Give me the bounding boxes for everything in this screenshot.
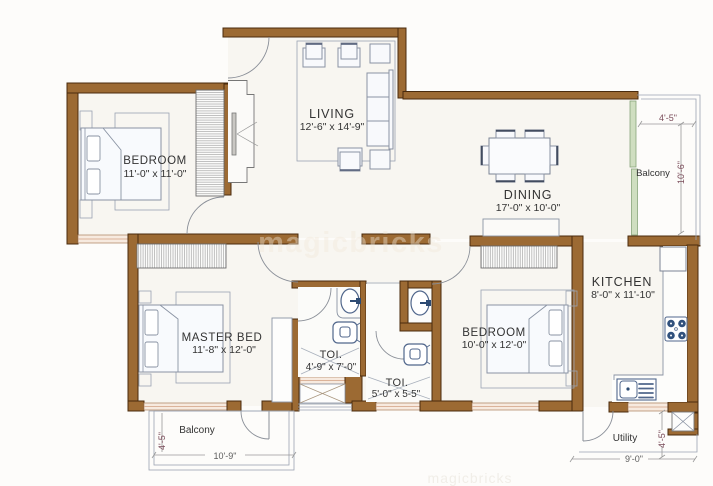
svg-text:Utility: Utility	[613, 433, 637, 444]
svg-text:Balcony: Balcony	[179, 425, 215, 436]
svg-text:4'-5": 4'-5"	[659, 113, 677, 123]
svg-text:LIVING: LIVING	[309, 107, 355, 121]
svg-text:TOI.: TOI.	[320, 349, 343, 361]
svg-text:4'-5": 4'-5"	[157, 432, 167, 450]
svg-text:BEDROOM: BEDROOM	[462, 327, 526, 339]
svg-text:Balcony: Balcony	[636, 168, 670, 179]
svg-text:17'-0" x 10'-0": 17'-0" x 10'-0"	[496, 202, 561, 214]
svg-text:DINING: DINING	[504, 188, 553, 202]
svg-text:magicbricks: magicbricks	[428, 470, 513, 486]
svg-text:10'-0" x 12'-0": 10'-0" x 12'-0"	[462, 339, 527, 351]
svg-text:4'-9" x 7'-0": 4'-9" x 7'-0"	[306, 362, 357, 373]
svg-text:magicbricks: magicbricks	[258, 227, 444, 259]
svg-text:8'-0" x 11'-10": 8'-0" x 11'-10"	[591, 289, 655, 301]
svg-text:10'-9": 10'-9"	[214, 451, 237, 461]
svg-text:12'-6" x 14'-9": 12'-6" x 14'-9"	[300, 121, 365, 133]
svg-text:KITCHEN: KITCHEN	[592, 275, 652, 289]
svg-text:9'-0": 9'-0"	[625, 454, 643, 464]
svg-text:BEDROOM: BEDROOM	[123, 155, 187, 167]
svg-text:MASTER BED: MASTER BED	[182, 332, 263, 344]
svg-text:10'-6": 10'-6"	[676, 161, 686, 184]
svg-text:11'-0" x 11'-0": 11'-0" x 11'-0"	[123, 168, 186, 180]
svg-text:5'-0" x 5-5": 5'-0" x 5-5"	[372, 389, 421, 400]
svg-text:TOI.: TOI.	[386, 377, 409, 389]
svg-text:4'-5": 4'-5"	[657, 430, 667, 448]
svg-text:11'-8" x 12'-0": 11'-8" x 12'-0"	[192, 344, 256, 356]
